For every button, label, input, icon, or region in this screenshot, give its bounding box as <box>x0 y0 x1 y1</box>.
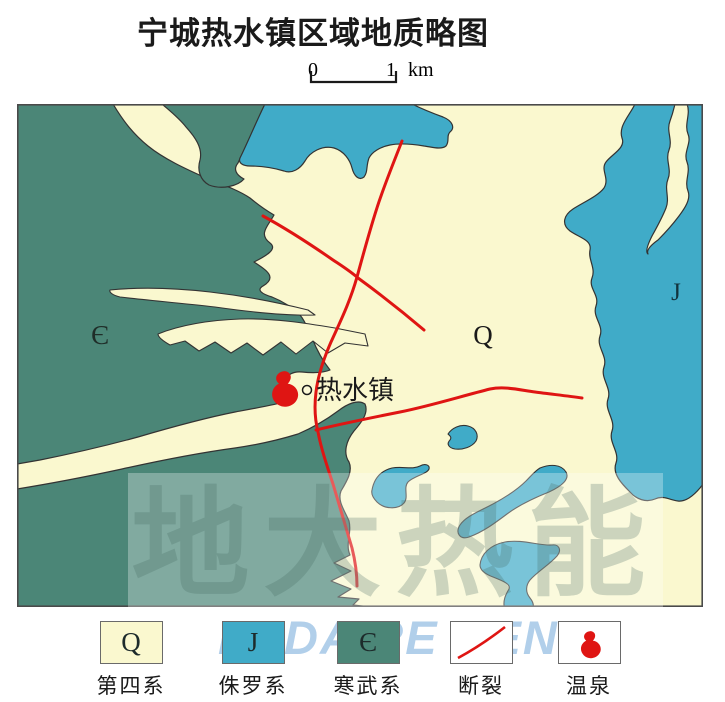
town-label: 热水镇 <box>316 376 394 405</box>
hot-spring-legend-icon <box>559 622 620 663</box>
quaternary-label: Q <box>473 320 493 350</box>
watermark-hanzi: 地大热能 <box>128 473 663 618</box>
jurassic-label: J <box>671 279 681 306</box>
legend-item-spring: 温泉 <box>539 621 639 700</box>
cambrian-swatch: Є <box>337 621 400 664</box>
scale-unit-label: km <box>408 59 434 81</box>
cambrian-symbol: Є <box>359 627 377 658</box>
geological-map-page: 宁城热水镇区域地质略图 0 1 km <box>0 0 725 702</box>
legend-label-fault: 断裂 <box>431 670 531 700</box>
scale-bracket <box>311 71 396 82</box>
town-marker <box>303 386 312 395</box>
legend-item-fault: 断裂 <box>431 621 531 700</box>
fault-swatch <box>450 621 513 664</box>
scale-bar: 0 1 km <box>280 52 460 88</box>
legend-label-quaternary: 第四系 <box>81 670 181 700</box>
spring-swatch <box>558 621 621 664</box>
page-title: 宁城热水镇区域地质略图 <box>0 8 626 53</box>
quaternary-swatch: Q <box>100 621 163 664</box>
fault-line-icon <box>451 622 512 663</box>
jurassic-symbol: J <box>248 627 259 658</box>
legend-item-cambrian: Є 寒武系 <box>318 621 418 700</box>
scale-one-label: 1 <box>386 59 396 81</box>
jurassic-swatch: J <box>222 621 285 664</box>
cambrian-label: Є <box>91 320 109 350</box>
scale-zero-label: 0 <box>308 59 318 81</box>
legend-item-jurassic: J 侏罗系 <box>203 621 303 700</box>
legend: Q 第四系 J 侏罗系 Є 寒武系 断裂 <box>0 615 725 702</box>
legend-label-spring: 温泉 <box>539 670 639 700</box>
legend-label-cambrian: 寒武系 <box>318 670 418 700</box>
legend-label-jurassic: 侏罗系 <box>203 670 303 700</box>
legend-item-quaternary: Q 第四系 <box>81 621 181 700</box>
quaternary-symbol: Q <box>121 627 141 658</box>
